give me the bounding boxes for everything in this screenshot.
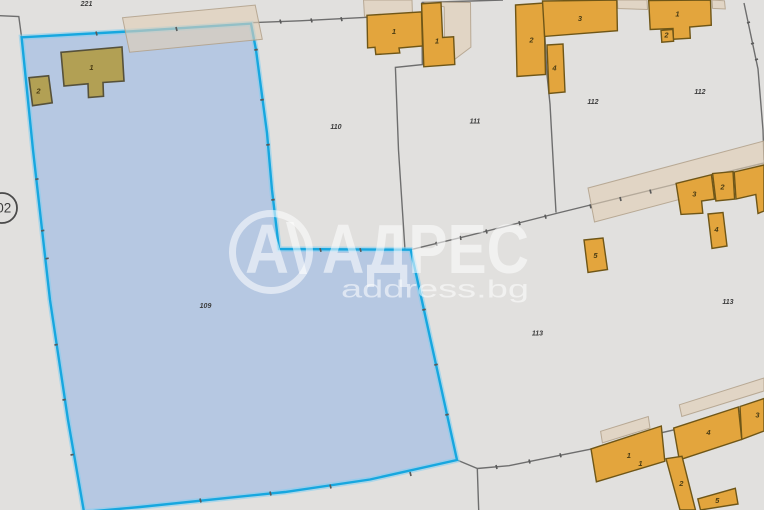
svg-text:1: 1 xyxy=(392,27,396,36)
svg-text:A: A xyxy=(245,210,289,288)
svg-text:4: 4 xyxy=(551,64,557,73)
svg-text:1: 1 xyxy=(638,459,642,468)
svg-text:110: 110 xyxy=(330,124,341,131)
svg-text:113: 113 xyxy=(722,299,733,306)
svg-text:address.bg: address.bg xyxy=(341,276,529,304)
svg-text:2: 2 xyxy=(663,31,669,40)
svg-text:4: 4 xyxy=(705,428,711,437)
svg-text:112: 112 xyxy=(587,99,598,106)
svg-text:1: 1 xyxy=(89,63,93,72)
svg-text:1: 1 xyxy=(675,10,679,19)
svg-text:109: 109 xyxy=(200,303,212,310)
svg-text:221: 221 xyxy=(80,1,93,8)
svg-text:1: 1 xyxy=(435,37,439,46)
svg-text:112: 112 xyxy=(694,89,705,96)
svg-text:2: 2 xyxy=(719,182,725,191)
svg-text:113: 113 xyxy=(532,331,543,338)
svg-text:2: 2 xyxy=(678,479,684,488)
svg-text:2: 2 xyxy=(528,36,534,45)
svg-text:4: 4 xyxy=(713,225,719,234)
svg-text:2: 2 xyxy=(35,87,41,96)
svg-text:102: 102 xyxy=(0,201,11,216)
svg-text:111: 111 xyxy=(470,119,481,126)
svg-text:1: 1 xyxy=(627,451,631,460)
